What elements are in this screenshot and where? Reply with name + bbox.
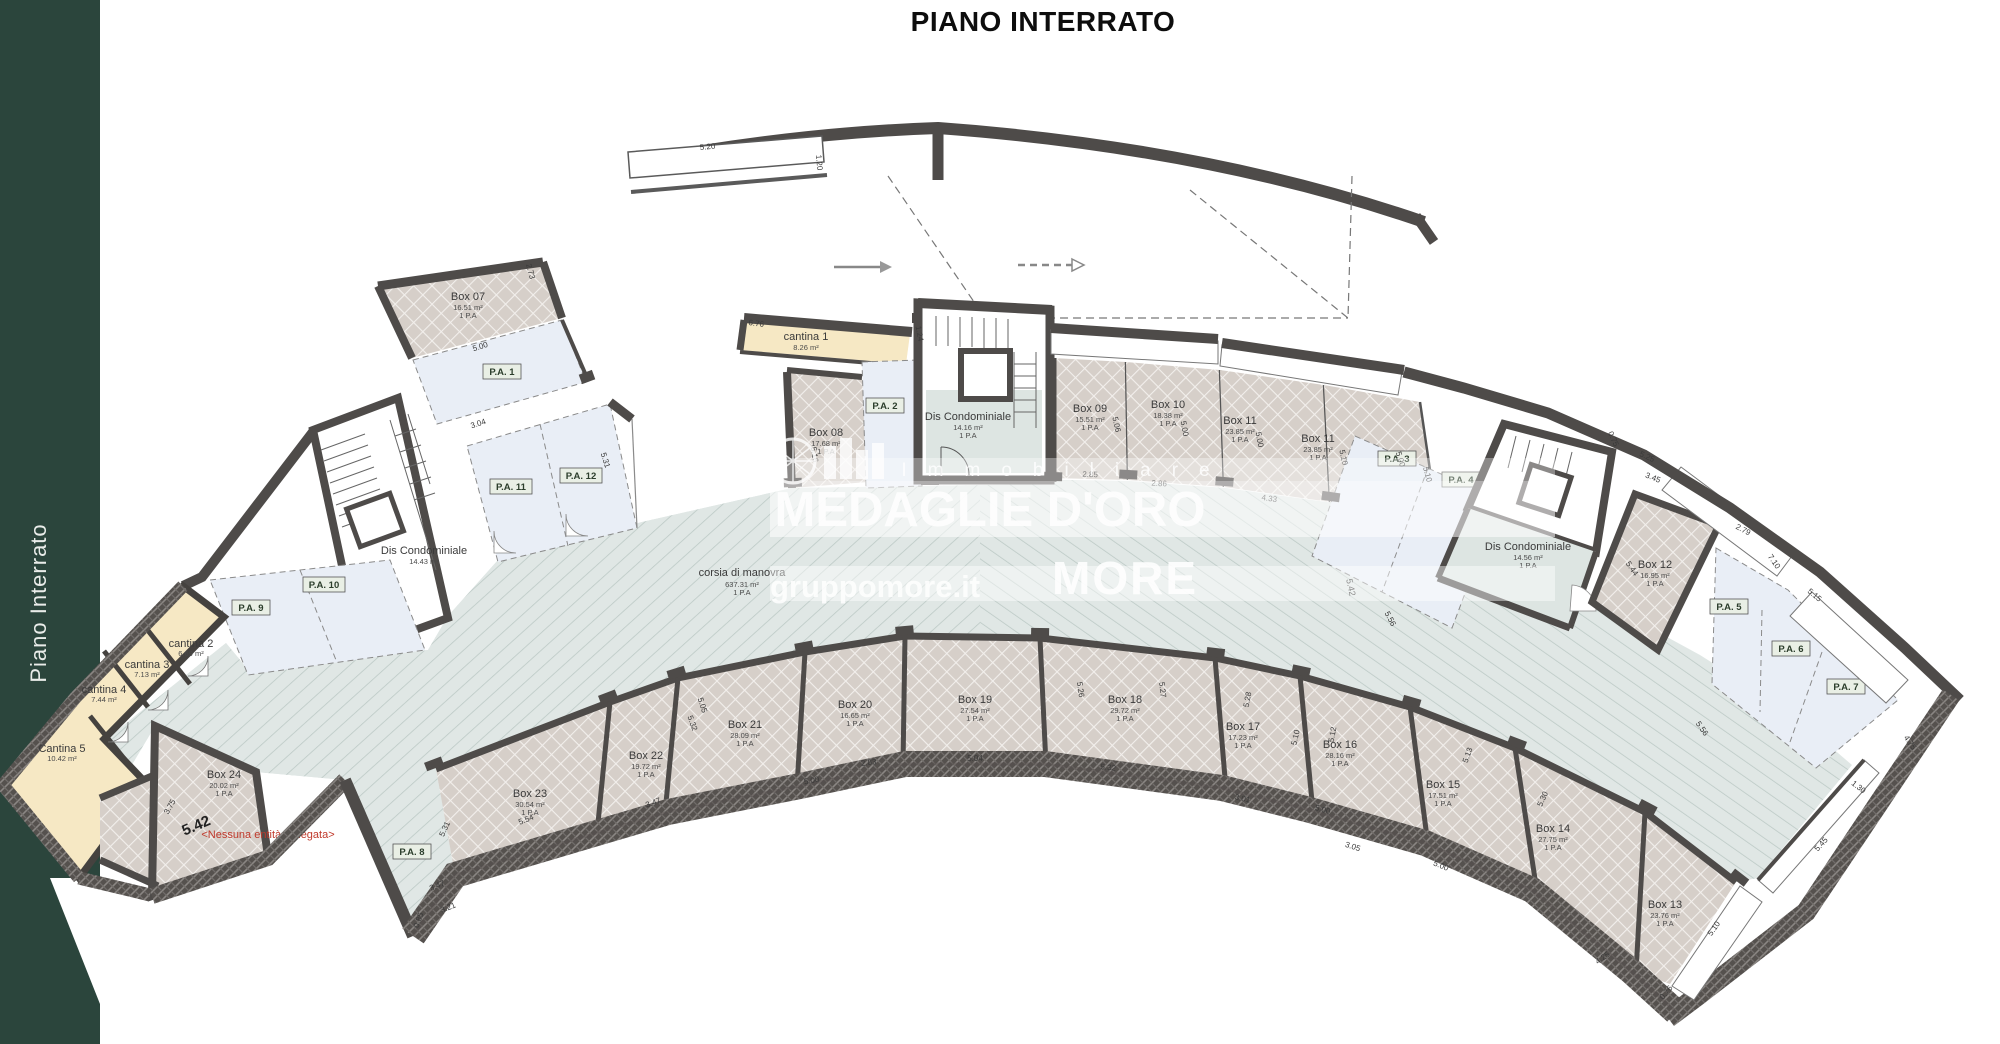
svg-text:P.A. 5: P.A. 5 [1716,602,1742,613]
svg-text:6.69 m²: 6.69 m² [178,649,204,658]
svg-text:Dis Condominiale: Dis Condominiale [925,411,1011,423]
svg-text:Box 19: Box 19 [958,694,992,706]
svg-text:Box 15: Box 15 [1426,779,1460,791]
svg-text:Box 07: Box 07 [451,291,485,303]
svg-text:Box 13: Box 13 [1648,899,1682,911]
svg-text:1 P.A: 1 P.A [736,739,753,748]
svg-text:5.04: 5.04 [967,754,983,763]
svg-text:Piano Interrato: Piano Interrato [26,523,51,682]
svg-text:1 P.A: 1 P.A [959,431,976,440]
svg-text:1 P.A: 1 P.A [1116,714,1133,723]
svg-text:1 P.A: 1 P.A [1434,799,1451,808]
svg-text:1 P.A: 1 P.A [1544,843,1561,852]
svg-text:P.A. 8: P.A. 8 [399,847,424,858]
svg-text:Box 10: Box 10 [1151,399,1185,411]
svg-text:1 P.A: 1 P.A [1646,579,1663,588]
svg-text:1.20: 1.20 [814,154,824,171]
svg-text:7.13 m²: 7.13 m² [134,670,160,679]
svg-text:P.A. 7: P.A. 7 [1833,682,1858,693]
svg-text:cantina 1: cantina 1 [784,331,829,343]
svg-text:8.26 m²: 8.26 m² [793,343,819,352]
svg-text:1 P.A: 1 P.A [846,719,863,728]
svg-text:Box 12: Box 12 [1638,559,1672,571]
svg-text:P.A. 6: P.A. 6 [1778,644,1803,655]
svg-text:1 P.A: 1 P.A [966,714,983,723]
svg-text:Box 23: Box 23 [513,788,547,800]
svg-text:P.A. 2: P.A. 2 [872,401,897,412]
svg-text:Box 21: Box 21 [728,719,762,731]
svg-text:Box 22: Box 22 [629,750,663,762]
svg-text:Dis Condominiale: Dis Condominiale [1485,541,1571,553]
svg-text:7.44 m²: 7.44 m² [91,695,117,704]
svg-text:Dis Condominiale: Dis Condominiale [381,545,467,557]
svg-text:5.27: 5.27 [1157,682,1168,699]
svg-text:Immobiliare: Immobiliare [901,460,1230,481]
svg-text:Box 18: Box 18 [1108,694,1142,706]
svg-text:Box 08: Box 08 [809,427,843,439]
svg-text:P.A. 9: P.A. 9 [238,603,263,614]
svg-text:1 P.A: 1 P.A [215,789,232,798]
svg-text:Box 09: Box 09 [1073,403,1107,415]
svg-text:MORE: MORE [1052,552,1198,604]
svg-text:MEDAGLIE D'ORO: MEDAGLIE D'ORO [775,483,1206,537]
svg-text:<Nessuna entità collegata>: <Nessuna entità collegata> [201,829,334,841]
svg-text:Box 24: Box 24 [207,769,241,781]
svg-text:Box 11: Box 11 [1223,415,1256,427]
svg-text:5.20: 5.20 [699,142,716,152]
svg-text:10.42 m²: 10.42 m² [47,754,77,763]
svg-text:P.A. 12: P.A. 12 [566,471,596,482]
svg-text:1 P.A: 1 P.A [1231,435,1248,444]
svg-text:14.43 m²: 14.43 m² [409,557,439,566]
svg-text:1 P.A: 1 P.A [1159,419,1176,428]
svg-text:1 P.A: 1 P.A [637,770,654,779]
svg-text:1 P.A: 1 P.A [1081,423,1098,432]
svg-text:2.83: 2.83 [861,757,878,768]
svg-text:P.A. 1: P.A. 1 [489,367,515,378]
svg-text:1 P.A: 1 P.A [1656,919,1673,928]
svg-text:1 P.A: 1 P.A [459,311,476,320]
svg-text:1 P.A: 1 P.A [1234,741,1251,750]
svg-text:P.A. 10: P.A. 10 [309,580,339,591]
svg-text:gruppomore.it: gruppomore.it [770,569,980,604]
svg-text:5.32: 5.32 [1100,762,1117,773]
svg-text:P.A. 11: P.A. 11 [496,482,527,493]
svg-text:1 P.A: 1 P.A [1331,759,1348,768]
svg-text:PIANO INTERRATO: PIANO INTERRATO [911,6,1176,37]
svg-text:Box 11: Box 11 [1301,433,1334,445]
svg-text:Box 14: Box 14 [1536,823,1570,835]
svg-text:1 P.A: 1 P.A [733,588,750,597]
svg-text:Box 20: Box 20 [838,699,872,711]
svg-text:Box 17: Box 17 [1226,721,1260,733]
